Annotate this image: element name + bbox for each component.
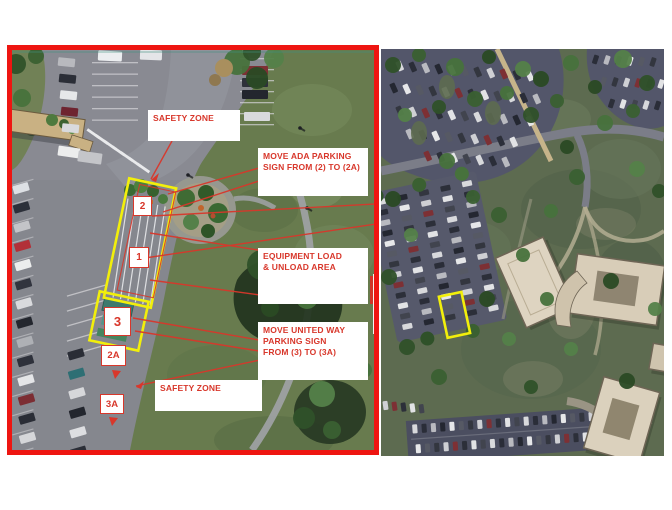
label-text: SAFETY ZONE	[160, 383, 258, 394]
overview-aerial-photo	[381, 49, 664, 456]
marker-2a: 2A	[101, 345, 126, 366]
site-plan-figure: SAFETY ZONE MOVE ADA PARKING SIGN FROM (…	[0, 0, 672, 510]
label-move-ada-parking-sign: MOVE ADA PARKING SIGN FROM (2) TO (2A)	[258, 148, 368, 196]
label-safety-zone-top: SAFETY ZONE	[148, 110, 240, 141]
overview-aerial-panel	[381, 49, 664, 456]
detail-aerial-panel: SAFETY ZONE MOVE ADA PARKING SIGN FROM (…	[7, 45, 379, 455]
label-text: MOVE ADA PARKING	[263, 151, 364, 162]
label-text: PARKING SIGN	[263, 336, 364, 347]
label-safety-zone-bottom: SAFETY ZONE	[155, 380, 262, 411]
label-equipment-load-unload: EQUIPMENT LOAD & UNLOAD AREA	[258, 248, 368, 304]
label-text: SAFETY ZONE	[153, 113, 236, 124]
marker-1: 1	[129, 247, 149, 268]
label-text: SIGN FROM (2) TO (2A)	[263, 162, 364, 173]
label-text: MOVE UNITED WAY	[263, 325, 364, 336]
marker-3: 3	[104, 307, 131, 336]
label-text: EQUIPMENT LOAD	[263, 251, 364, 262]
marker-2: 2	[133, 196, 152, 216]
label-text: FROM (3) TO (3A)	[263, 347, 364, 358]
marker-3a: 3A	[100, 394, 124, 414]
label-move-united-way-sign: MOVE UNITED WAY PARKING SIGN FROM (3) TO…	[258, 322, 368, 380]
label-text: & UNLOAD AREA	[263, 262, 364, 273]
